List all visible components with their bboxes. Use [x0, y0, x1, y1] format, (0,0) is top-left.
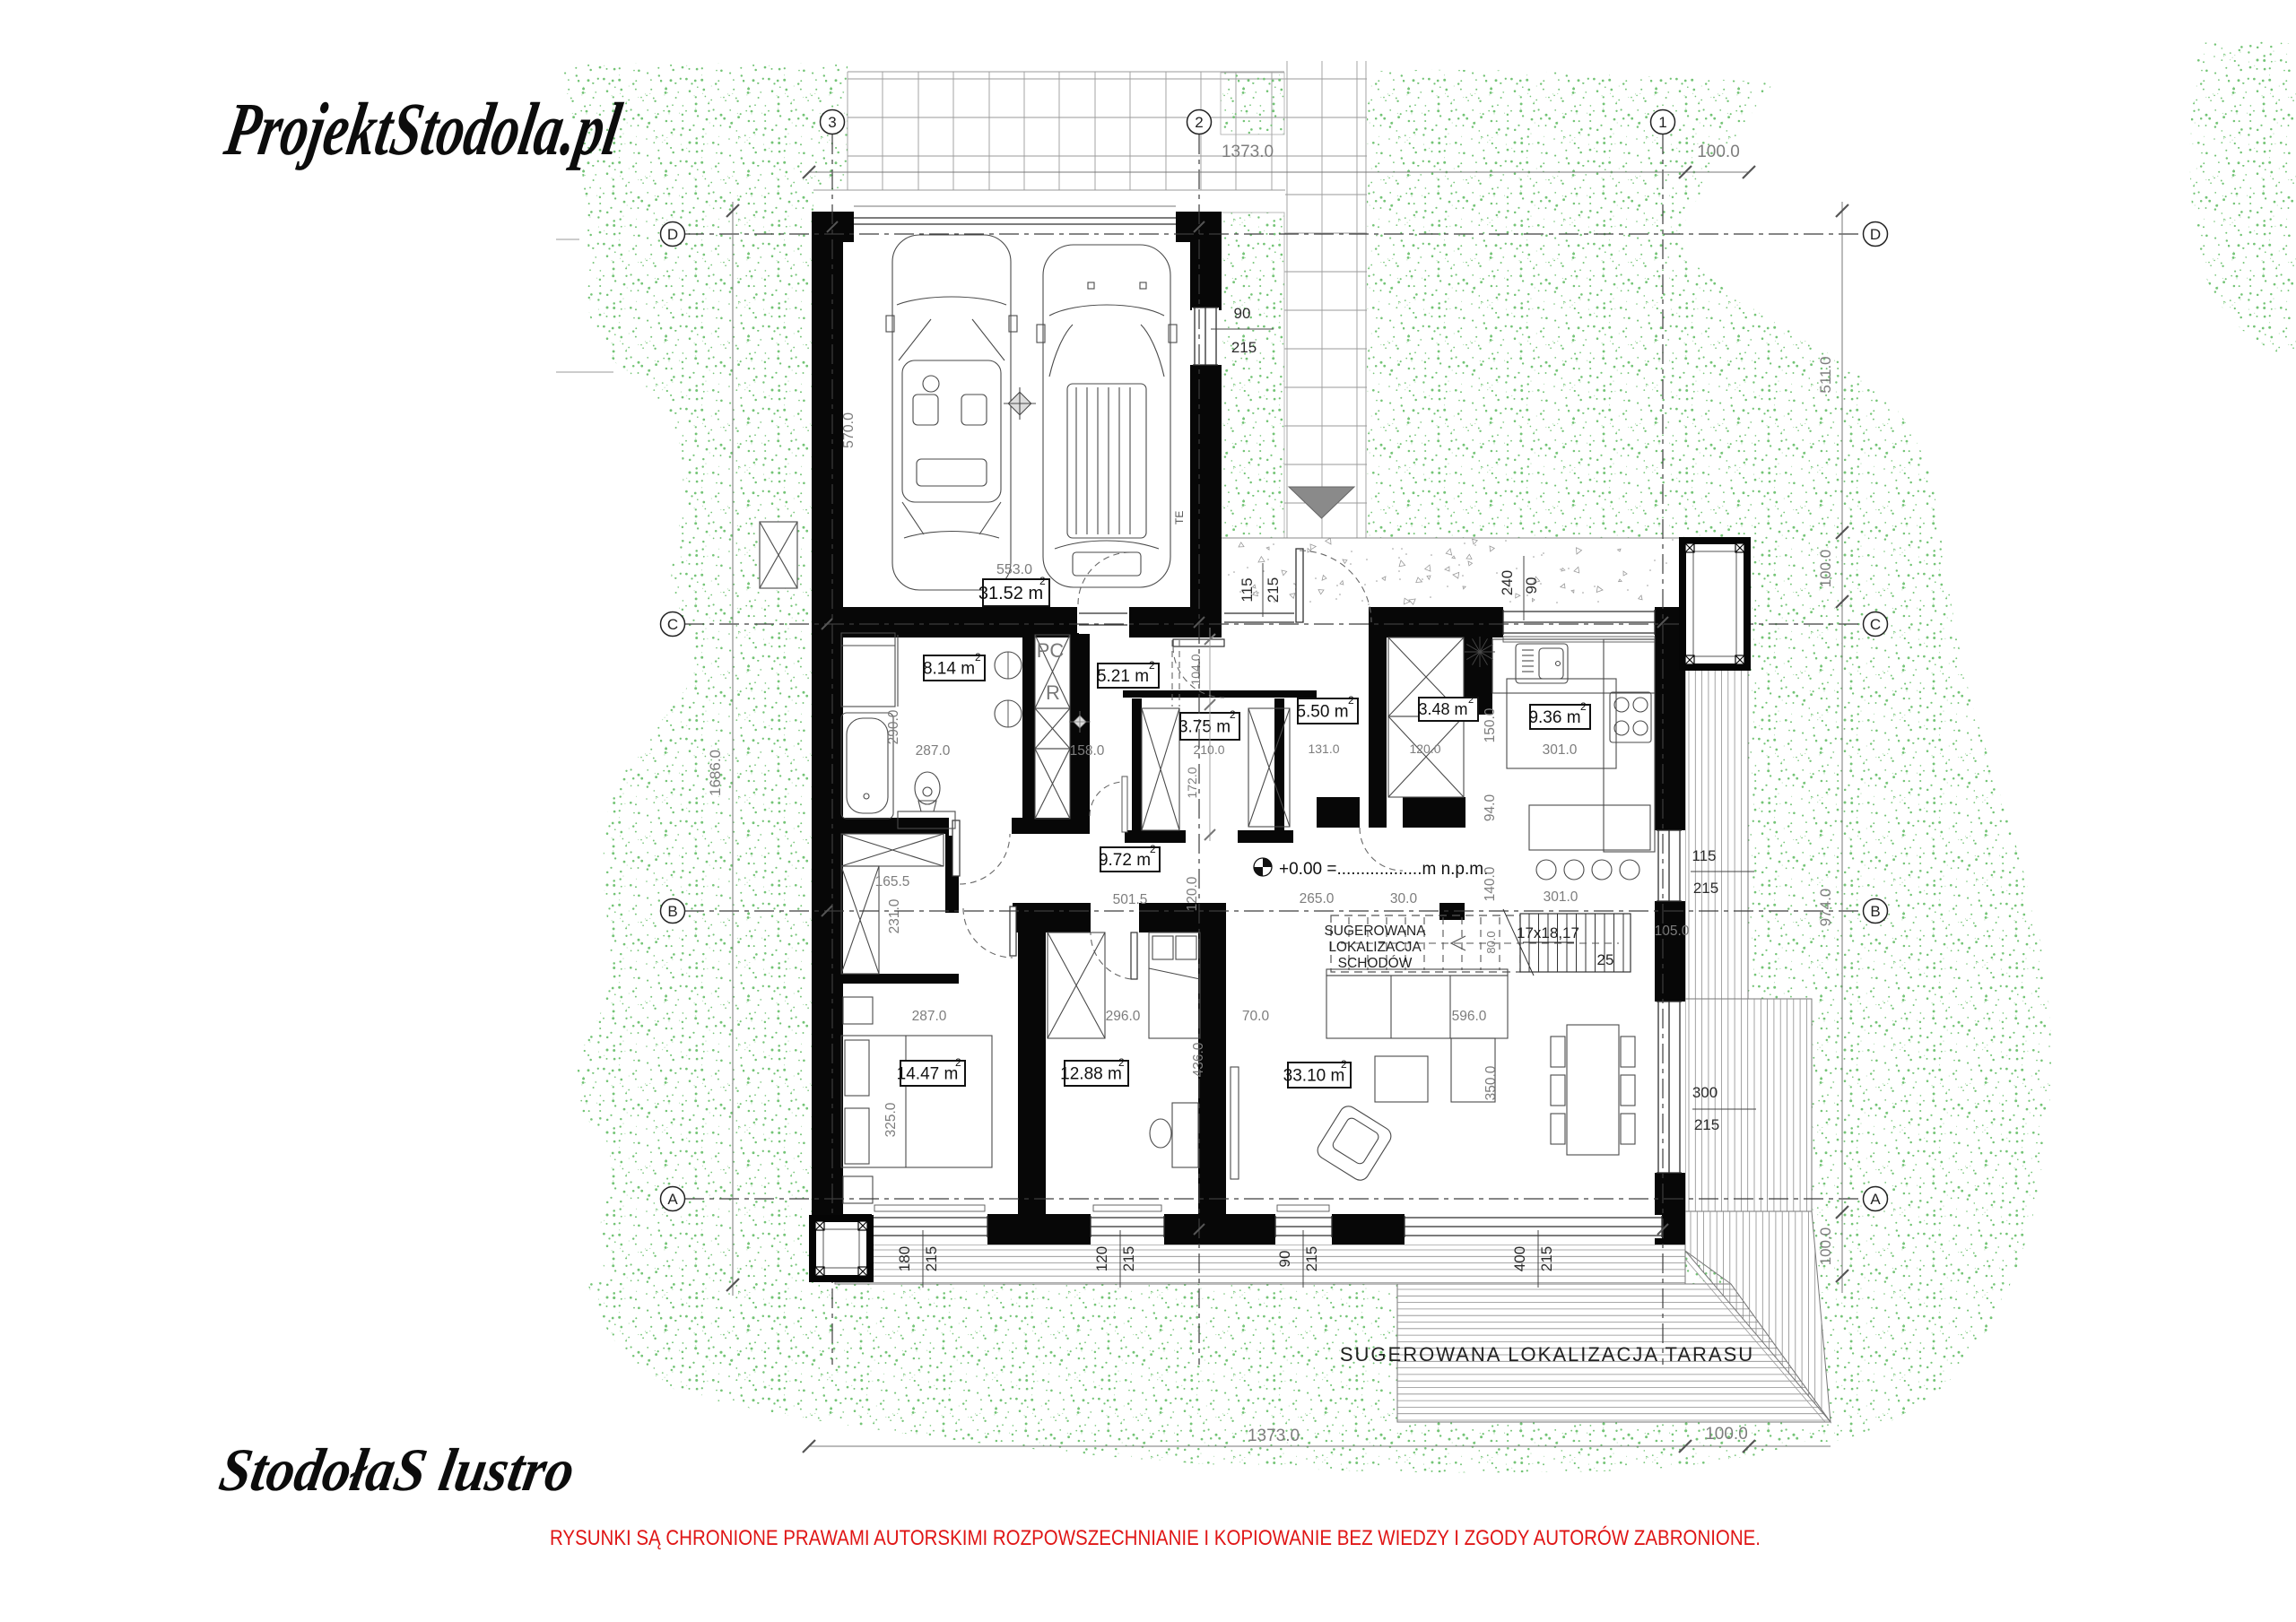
- svg-text:D: D: [1870, 226, 1881, 243]
- svg-text:104.0: 104.0: [1188, 654, 1203, 685]
- svg-text:ProjektStodola.pl: ProjektStodola.pl: [219, 89, 627, 171]
- svg-text:120.0: 120.0: [1409, 742, 1440, 756]
- svg-text:30.0: 30.0: [1390, 891, 1418, 906]
- svg-text:12.88 m: 12.88 m: [1060, 1064, 1122, 1083]
- svg-text:31.52 m: 31.52 m: [978, 584, 1043, 603]
- svg-text:301.0: 301.0: [1544, 889, 1578, 905]
- svg-text:33.10 m: 33.10 m: [1283, 1066, 1345, 1085]
- svg-text:90: 90: [1523, 577, 1540, 594]
- svg-text:A: A: [667, 1191, 678, 1208]
- svg-text:2: 2: [1580, 700, 1587, 713]
- svg-text:1: 1: [1658, 114, 1666, 131]
- svg-text:2: 2: [1348, 694, 1354, 707]
- svg-text:511.0: 511.0: [1817, 356, 1834, 393]
- svg-text:R: R: [1046, 681, 1060, 704]
- svg-text:115: 115: [1239, 577, 1256, 602]
- svg-text:596.0: 596.0: [1452, 1009, 1487, 1024]
- svg-text:SCHODÓW: SCHODÓW: [1338, 956, 1413, 971]
- svg-text:90: 90: [1234, 305, 1251, 322]
- svg-text:300: 300: [1692, 1084, 1718, 1101]
- svg-text:287.0: 287.0: [916, 743, 951, 759]
- svg-text:SUGEROWANA LOKALIZACJA TARASU: SUGEROWANA LOKALIZACJA TARASU: [1340, 1343, 1754, 1366]
- svg-text:2: 2: [1118, 1056, 1125, 1069]
- svg-text:290.0: 290.0: [886, 709, 901, 744]
- svg-text:215: 215: [1693, 880, 1718, 897]
- svg-text:3.48 m: 3.48 m: [1418, 700, 1467, 718]
- svg-text:287.0: 287.0: [912, 1009, 947, 1024]
- svg-text:1686.0: 1686.0: [707, 750, 724, 796]
- svg-text:2: 2: [955, 1056, 961, 1069]
- svg-text:PC: PC: [1037, 639, 1065, 662]
- svg-text:553.0: 553.0: [996, 562, 1032, 577]
- svg-text:215: 215: [1120, 1246, 1137, 1271]
- svg-text:325.0: 325.0: [883, 1102, 899, 1137]
- svg-text:215: 215: [1231, 339, 1257, 356]
- svg-text:400: 400: [1511, 1246, 1528, 1271]
- svg-text:2: 2: [975, 651, 981, 664]
- svg-text:215: 215: [923, 1246, 940, 1271]
- svg-text:158.0: 158.0: [1070, 743, 1105, 759]
- svg-text:14.47 m: 14.47 m: [897, 1064, 959, 1083]
- svg-text:501.5: 501.5: [1113, 892, 1148, 907]
- svg-text:131.0: 131.0: [1308, 742, 1339, 756]
- svg-text:SUGEROWANA: SUGEROWANA: [1324, 924, 1426, 939]
- svg-text:RYSUNKI SĄ CHRONIONE PRAWAMI: RYSUNKI SĄ CHRONIONE PRAWAMI AUTORSKIMI …: [550, 1526, 1761, 1550]
- svg-text:B: B: [667, 903, 677, 920]
- svg-text:150.0: 150.0: [1483, 707, 1498, 742]
- svg-text:100.0: 100.0: [1705, 1425, 1748, 1444]
- svg-text:1373.0: 1373.0: [1248, 1427, 1300, 1445]
- svg-text:3.75 m: 3.75 m: [1178, 717, 1231, 736]
- svg-text:2: 2: [1039, 575, 1046, 587]
- svg-text:2: 2: [1150, 843, 1156, 855]
- svg-text:974.0: 974.0: [1817, 889, 1834, 927]
- svg-text:120: 120: [1093, 1246, 1110, 1271]
- svg-text:350.0: 350.0: [1483, 1065, 1499, 1100]
- svg-text:165.5: 165.5: [875, 874, 910, 889]
- svg-text:1373.0: 1373.0: [1222, 143, 1274, 161]
- svg-text:5.21 m: 5.21 m: [1097, 667, 1149, 686]
- svg-text:90: 90: [1276, 1251, 1293, 1268]
- svg-text:TE: TE: [1173, 511, 1186, 525]
- svg-text:2: 2: [1341, 1058, 1347, 1071]
- svg-text:C: C: [1870, 616, 1881, 633]
- svg-text:9.36 m: 9.36 m: [1528, 708, 1580, 727]
- svg-text:2: 2: [1230, 708, 1236, 721]
- svg-text:D: D: [667, 226, 678, 243]
- svg-text:140.0: 140.0: [1483, 866, 1498, 901]
- svg-text:265.0: 265.0: [1300, 891, 1335, 906]
- svg-text:C: C: [667, 616, 678, 633]
- svg-text:215: 215: [1538, 1246, 1555, 1271]
- svg-text:105.0: 105.0: [1655, 924, 1690, 939]
- svg-text:8.14 m: 8.14 m: [923, 659, 975, 678]
- svg-text:A: A: [1870, 1191, 1881, 1208]
- svg-text:17x18,17: 17x18,17: [1517, 924, 1579, 941]
- svg-text:215: 215: [1303, 1246, 1320, 1271]
- svg-text:570.0: 570.0: [841, 412, 857, 448]
- svg-text:115: 115: [1692, 847, 1716, 864]
- svg-text:StodołaS lustro: StodołaS lustro: [214, 1436, 579, 1503]
- svg-text:210.0: 210.0: [1193, 742, 1224, 757]
- svg-text:2: 2: [1468, 695, 1474, 706]
- svg-text:100.0: 100.0: [1697, 143, 1740, 161]
- svg-text:301.0: 301.0: [1543, 742, 1578, 758]
- svg-text:25: 25: [1597, 951, 1614, 968]
- svg-text:215: 215: [1265, 577, 1282, 603]
- svg-text:B: B: [1870, 903, 1880, 920]
- svg-text:5.50 m: 5.50 m: [1296, 702, 1348, 721]
- svg-text:240: 240: [1499, 570, 1516, 595]
- svg-text:100.0: 100.0: [1817, 550, 1834, 588]
- svg-text:LOKALIZACJA: LOKALIZACJA: [1328, 940, 1422, 955]
- svg-text:231.0: 231.0: [887, 898, 902, 933]
- svg-text:3: 3: [828, 114, 836, 131]
- svg-text:80.0: 80.0: [1484, 931, 1498, 953]
- svg-text:2: 2: [1195, 114, 1203, 131]
- svg-text:2: 2: [1149, 659, 1155, 672]
- svg-text:94.0: 94.0: [1483, 794, 1498, 822]
- svg-text:180: 180: [896, 1246, 913, 1271]
- svg-text:120.0: 120.0: [1185, 876, 1200, 911]
- svg-text:70.0: 70.0: [1242, 1009, 1270, 1024]
- svg-text:172.0: 172.0: [1185, 767, 1199, 798]
- svg-text:9.72 m: 9.72 m: [1099, 851, 1151, 870]
- svg-text:215: 215: [1694, 1116, 1719, 1133]
- svg-text:296.0: 296.0: [1106, 1009, 1141, 1024]
- svg-text:100.0: 100.0: [1817, 1227, 1834, 1266]
- svg-text:+0.00 =..................m n.p: +0.00 =..................m n.p.m.: [1279, 860, 1488, 879]
